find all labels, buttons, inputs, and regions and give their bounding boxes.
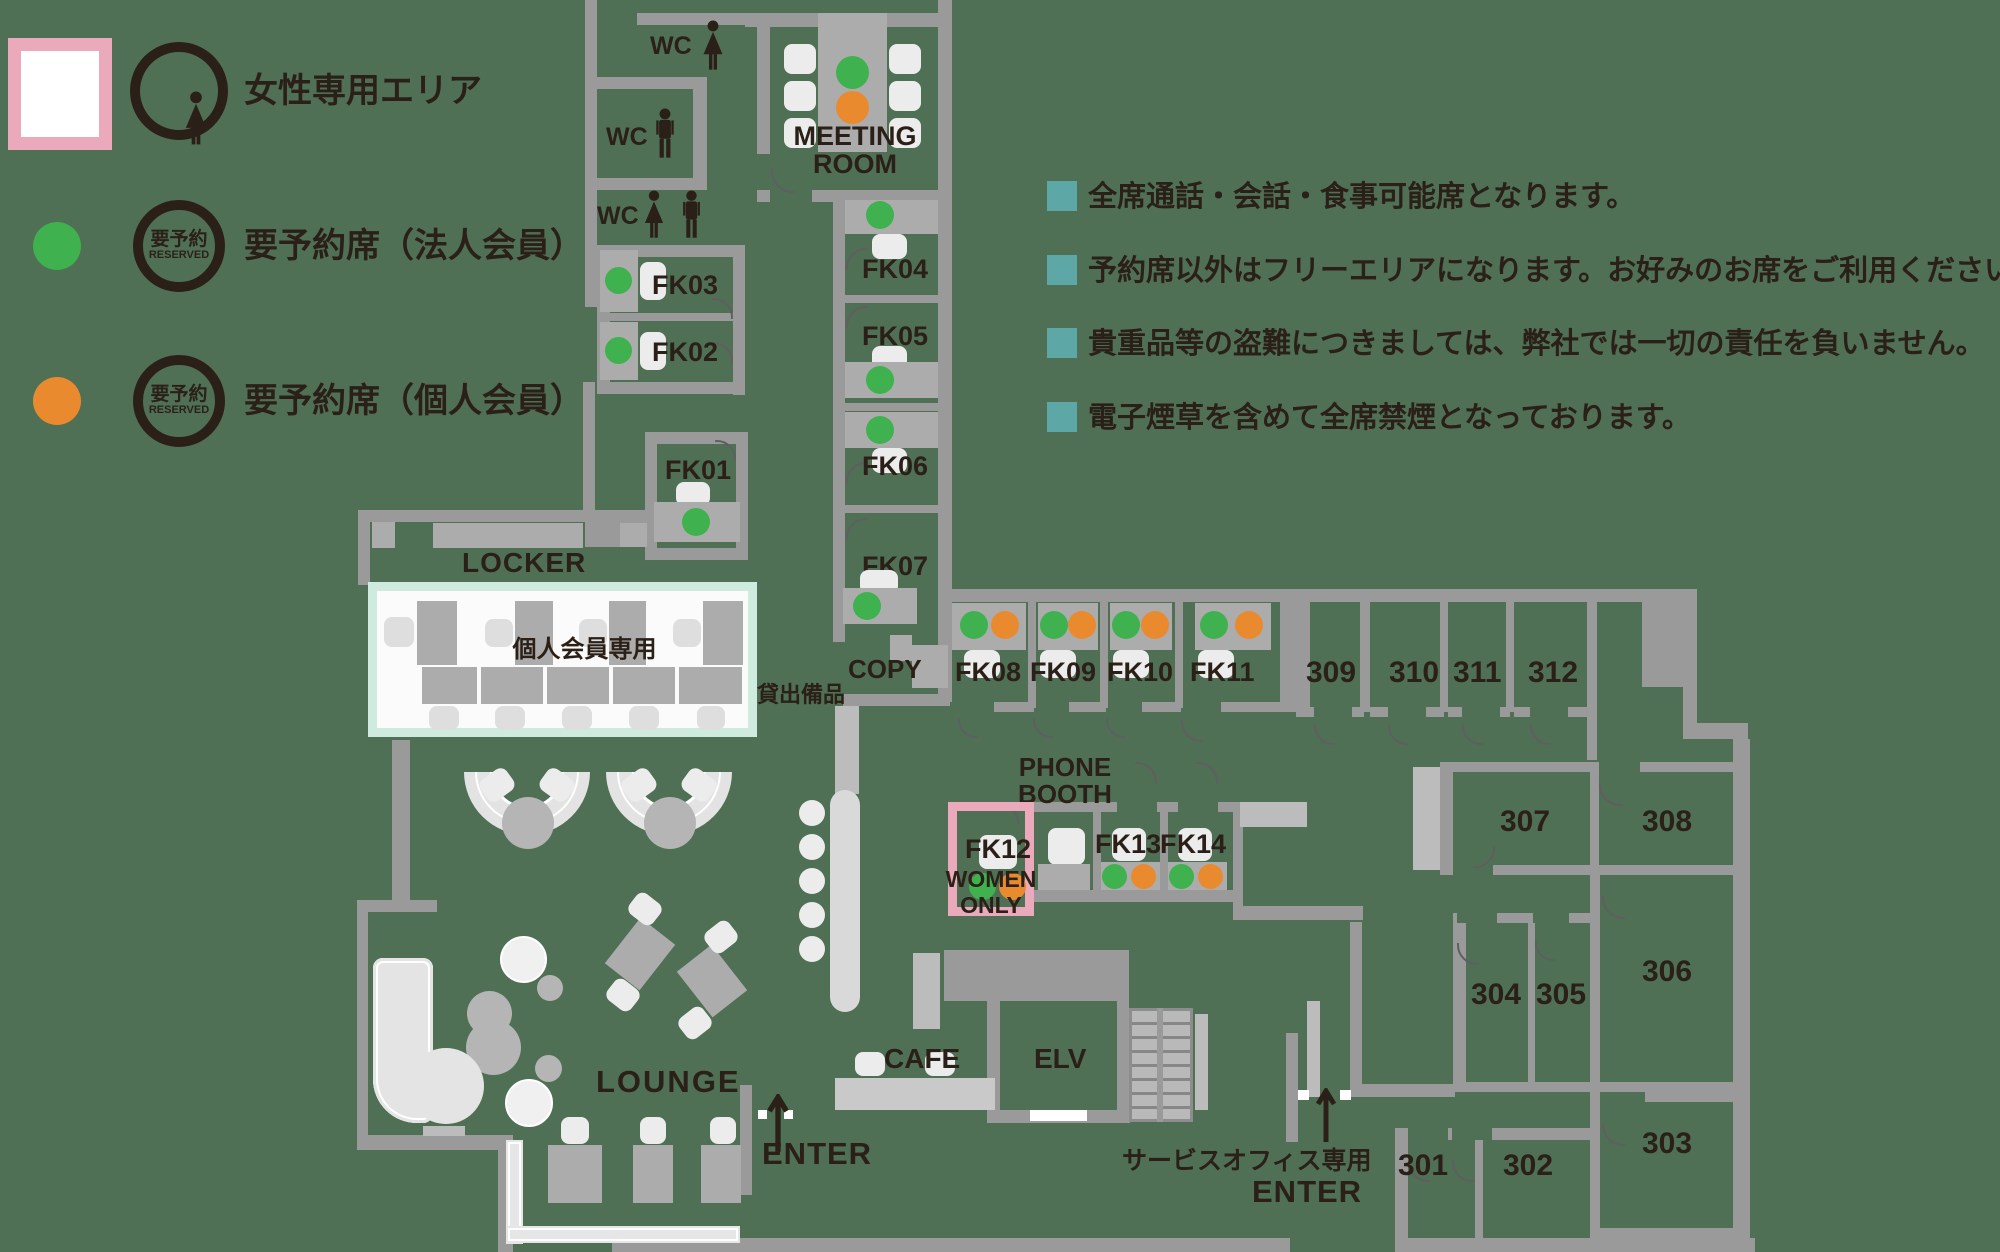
room-label-fk09: FK09 bbox=[1030, 658, 1096, 686]
female-badge bbox=[130, 42, 228, 140]
wall bbox=[1597, 1082, 1733, 1092]
stool bbox=[799, 902, 825, 928]
chair bbox=[889, 81, 921, 111]
wall bbox=[1100, 602, 1108, 708]
desk bbox=[679, 667, 742, 704]
door-mark bbox=[1298, 1090, 1309, 1100]
room-label-fk02: FK02 bbox=[652, 338, 718, 366]
wall bbox=[1500, 707, 1510, 717]
wall bbox=[1645, 1092, 1733, 1102]
notes: 全席通話・会話・食事可能席となります。 予約席以外はフリーエリアになります。お好… bbox=[1040, 170, 2000, 450]
reserved-seat-corporate-dot bbox=[1112, 611, 1140, 639]
wall bbox=[583, 382, 595, 512]
wall bbox=[1448, 707, 1462, 717]
note-text: 予約席以外はフリーエリアになります。お好みのお席をご利用ください。 bbox=[1088, 256, 2000, 286]
desk bbox=[422, 667, 477, 704]
lending-equipment-label: 貸出備品 bbox=[757, 683, 845, 706]
wall bbox=[358, 510, 370, 585]
pouf bbox=[537, 975, 563, 1001]
phone-booth-chair bbox=[1048, 828, 1085, 865]
wall bbox=[757, 190, 770, 202]
reserved-seat-individual-dot bbox=[1131, 864, 1156, 889]
room-label-fk08: FK08 bbox=[955, 658, 1021, 686]
meeting-room-label-line1: MEETING bbox=[793, 122, 916, 150]
wall bbox=[1597, 1228, 1750, 1240]
room-label-310: 310 bbox=[1389, 657, 1439, 689]
wall bbox=[938, 589, 1697, 602]
door-arc bbox=[1602, 1104, 1644, 1146]
wc-men-label: WC bbox=[606, 124, 648, 150]
stool bbox=[799, 800, 825, 826]
enter-label: ENTER bbox=[762, 1138, 872, 1171]
room-label-301: 301 bbox=[1398, 1150, 1448, 1182]
door-mark bbox=[1340, 1090, 1351, 1100]
wall bbox=[1395, 1238, 1755, 1252]
wall bbox=[1370, 707, 1388, 717]
wall bbox=[357, 1135, 513, 1150]
locker-members-note: 個人会員専用 bbox=[457, 637, 712, 663]
legend-women-area-label: 女性専用エリア bbox=[244, 74, 482, 110]
locker-unit bbox=[620, 523, 647, 547]
room-label-fk01: FK01 bbox=[665, 456, 731, 484]
counter bbox=[830, 790, 860, 1012]
legend-corporate-label: 要予約席（法人会員） bbox=[244, 229, 584, 265]
cafe-counter bbox=[913, 953, 940, 1029]
reserved-badge-en: RESERVED bbox=[149, 405, 209, 417]
chair bbox=[561, 1117, 589, 1144]
reserved-seat-individual-dot bbox=[836, 91, 869, 124]
wall bbox=[1492, 1128, 1590, 1140]
round-table bbox=[644, 797, 696, 849]
women-area-swatch bbox=[8, 38, 112, 150]
room-label-fk14: FK14 bbox=[1160, 830, 1226, 858]
door-arc bbox=[1535, 925, 1571, 961]
wall bbox=[1175, 602, 1183, 708]
wall bbox=[1413, 767, 1440, 870]
wall bbox=[843, 694, 950, 706]
wall bbox=[585, 0, 597, 307]
wall bbox=[1733, 760, 1750, 1242]
room-label-fk12: FK12 bbox=[965, 835, 1031, 863]
wall bbox=[1683, 687, 1697, 725]
chair bbox=[784, 44, 816, 74]
reserved-seat-corporate-dot bbox=[605, 337, 632, 364]
cafe-label: CAFE bbox=[884, 1044, 960, 1073]
wall bbox=[1069, 702, 1106, 712]
room-label-303: 303 bbox=[1642, 1128, 1692, 1160]
chair bbox=[629, 706, 659, 730]
room-label-fk11: FK11 bbox=[1190, 658, 1255, 686]
wall bbox=[1514, 707, 1530, 717]
pouf bbox=[500, 936, 547, 983]
reserved-seat-corporate-dot bbox=[33, 222, 81, 270]
phone-booth-label-line1: PHONE bbox=[1019, 754, 1111, 781]
chair bbox=[889, 44, 921, 74]
legend-individual-label: 要予約席（個人会員） bbox=[244, 384, 584, 420]
pouf bbox=[505, 1079, 553, 1127]
table bbox=[701, 1145, 741, 1203]
lounge-table bbox=[677, 945, 747, 1018]
reserved-seat-individual-dot bbox=[991, 611, 1019, 639]
wall bbox=[392, 740, 410, 902]
wall bbox=[1280, 602, 1296, 708]
wall bbox=[1569, 913, 1590, 923]
wall bbox=[1683, 723, 1748, 739]
wall bbox=[1640, 762, 1733, 772]
floor-plan: 女性専用エリア 要予約 RESERVED 要予約席（法人会員） 要予約 RESE… bbox=[0, 0, 2000, 1252]
reserved-seat-individual-dot bbox=[1068, 611, 1096, 639]
stool bbox=[799, 834, 825, 860]
note-bullet bbox=[1047, 255, 1077, 285]
room-label-fk10: FK10 bbox=[1107, 658, 1173, 686]
stool bbox=[799, 936, 825, 962]
room-label-307: 307 bbox=[1500, 806, 1550, 838]
pouf bbox=[535, 1055, 562, 1082]
elv-label: ELV bbox=[1034, 1044, 1086, 1073]
door-arc bbox=[1455, 828, 1495, 868]
room-label-304: 304 bbox=[1471, 979, 1521, 1011]
room-label-311: 311 bbox=[1453, 657, 1501, 689]
reserved-seat-corporate-dot bbox=[836, 56, 869, 89]
reserved-badge: 要予約 RESERVED bbox=[133, 200, 225, 292]
chair bbox=[625, 890, 665, 929]
door-arc bbox=[1117, 762, 1157, 802]
reserved-seat-individual-dot bbox=[1235, 611, 1263, 639]
bench bbox=[506, 1226, 740, 1243]
chair bbox=[429, 706, 459, 730]
phone-booth-label: PHONE BOOTH bbox=[1010, 755, 1120, 807]
shelf bbox=[1240, 802, 1307, 827]
reserved-seat-individual-dot bbox=[33, 377, 81, 425]
wall bbox=[1360, 602, 1370, 712]
wall bbox=[1497, 913, 1533, 923]
wall bbox=[1590, 875, 1600, 1092]
wall bbox=[357, 900, 437, 912]
chair bbox=[640, 1117, 666, 1144]
wall bbox=[757, 27, 770, 154]
reserved-seat-corporate-dot bbox=[1200, 611, 1228, 639]
room-label-309: 309 bbox=[1306, 657, 1356, 689]
door-arc bbox=[1599, 764, 1641, 806]
note-text: 貴重品等の盗難につきましては、弊社では一切の責任を負いません。 bbox=[1088, 329, 1985, 359]
wall bbox=[1493, 865, 1597, 875]
service-enter-label: ENTER bbox=[1252, 1176, 1362, 1209]
wall bbox=[1195, 1014, 1208, 1110]
locker-unit bbox=[433, 523, 583, 548]
table bbox=[633, 1145, 673, 1203]
wall bbox=[1440, 762, 1453, 874]
locker-members-area: 個人会員専用 bbox=[368, 582, 757, 737]
door-arc bbox=[1452, 1142, 1492, 1182]
wc-unisex-label: WC bbox=[597, 203, 639, 229]
wall bbox=[733, 245, 745, 395]
reserved-seat-corporate-dot bbox=[682, 508, 710, 536]
door-arc bbox=[1178, 762, 1218, 802]
cafe-counter bbox=[835, 1078, 995, 1110]
room-label-305: 305 bbox=[1536, 979, 1586, 1011]
wall bbox=[1296, 707, 1314, 717]
stair-rail bbox=[1157, 1008, 1163, 1122]
wall bbox=[1221, 702, 1296, 712]
wall bbox=[1506, 602, 1514, 712]
lounge-sofa bbox=[408, 1048, 484, 1124]
wall bbox=[1117, 1001, 1129, 1122]
desk bbox=[547, 667, 609, 704]
room-label-312: 312 bbox=[1528, 657, 1578, 689]
room-label-fk04: FK04 bbox=[862, 255, 928, 283]
wall bbox=[1475, 1140, 1483, 1252]
wall bbox=[1440, 762, 1597, 772]
wall bbox=[1426, 707, 1444, 717]
wall bbox=[645, 432, 745, 444]
meeting-room-label: MEETING ROOM bbox=[775, 122, 935, 178]
room-label-fk06: FK06 bbox=[862, 452, 928, 480]
wall bbox=[1597, 865, 1733, 875]
reserved-seat-corporate-dot bbox=[1169, 864, 1194, 889]
copy-label: COPY bbox=[848, 656, 922, 683]
desk bbox=[1038, 864, 1090, 890]
wall bbox=[994, 702, 1034, 712]
door-arc bbox=[1106, 702, 1142, 738]
wall bbox=[645, 548, 748, 560]
women-only-room-fk12: FK12 WOMEN ONLY bbox=[948, 802, 1034, 916]
reserved-seat-corporate-dot bbox=[960, 611, 988, 639]
wall bbox=[938, 0, 952, 602]
wall bbox=[1350, 1084, 1455, 1097]
wall bbox=[1286, 1033, 1298, 1142]
door-slab bbox=[1307, 1001, 1320, 1097]
wall bbox=[1350, 922, 1362, 1097]
table bbox=[548, 1145, 602, 1203]
wall bbox=[1033, 890, 1243, 902]
reserved-seat-corporate-dot bbox=[1040, 611, 1068, 639]
room-label-308: 308 bbox=[1642, 806, 1692, 838]
door-arc bbox=[1033, 702, 1069, 738]
wall bbox=[740, 1085, 752, 1195]
reserved-seat-corporate-dot bbox=[853, 592, 881, 620]
chair bbox=[697, 706, 725, 730]
lounge-label: LOUNGE bbox=[596, 1066, 741, 1099]
reserved-seat-corporate-dot bbox=[1102, 864, 1127, 889]
note-bullet bbox=[1047, 402, 1077, 432]
reserved-badge-jp: 要予約 bbox=[150, 385, 207, 405]
room-label-fk13: FK13 bbox=[1095, 830, 1161, 858]
wall bbox=[833, 505, 938, 513]
service-office-label: サービスオフィス専用 bbox=[1122, 1148, 1372, 1174]
wall bbox=[597, 382, 745, 394]
chair bbox=[562, 706, 592, 730]
wall bbox=[1395, 1128, 1408, 1252]
reserved-badge-en: RESERVED bbox=[149, 250, 209, 262]
wall bbox=[357, 900, 368, 1147]
chair bbox=[710, 1117, 736, 1144]
room-label-fk03: FK03 bbox=[652, 271, 718, 299]
locker-label: LOCKER bbox=[462, 548, 586, 577]
wall bbox=[1642, 602, 1697, 687]
wall bbox=[833, 202, 845, 642]
door-arc bbox=[1388, 707, 1426, 745]
door-arc bbox=[1181, 702, 1221, 742]
only-label: ONLY bbox=[957, 893, 1025, 917]
round-table bbox=[502, 797, 554, 849]
wall bbox=[944, 950, 1129, 1001]
wall bbox=[597, 178, 707, 190]
wall bbox=[1142, 702, 1181, 712]
chair bbox=[495, 706, 525, 730]
reserved-seat-corporate-dot bbox=[866, 366, 894, 394]
wall bbox=[693, 85, 707, 185]
shelf bbox=[835, 706, 859, 794]
room-label-302: 302 bbox=[1503, 1150, 1553, 1182]
wall bbox=[597, 77, 707, 89]
wall bbox=[1453, 1082, 1597, 1092]
note-bullet bbox=[1047, 181, 1077, 211]
wall bbox=[1587, 602, 1597, 760]
wall bbox=[833, 403, 938, 411]
wall bbox=[1448, 1128, 1452, 1140]
wall bbox=[1028, 602, 1036, 708]
wall bbox=[1590, 762, 1599, 875]
wall bbox=[358, 510, 585, 522]
door-arc bbox=[1462, 707, 1500, 745]
desk bbox=[613, 667, 675, 704]
stool bbox=[799, 868, 825, 894]
note-text: 電子煙草を含めて全席禁煙となっております。 bbox=[1088, 403, 1691, 433]
elevator-door bbox=[1030, 1110, 1087, 1121]
note-bullet bbox=[1047, 328, 1077, 358]
door-arc bbox=[958, 702, 994, 738]
door-arc bbox=[1602, 877, 1644, 919]
chair bbox=[855, 1052, 885, 1076]
locker-unit bbox=[372, 522, 395, 548]
meeting-room-label-line2: ROOM bbox=[813, 150, 897, 178]
wall bbox=[1453, 913, 1457, 923]
room-label-306: 306 bbox=[1642, 956, 1692, 988]
legend: 女性専用エリア 要予約 RESERVED 要予約席（法人会員） 要予約 RESE… bbox=[0, 0, 560, 460]
wall bbox=[1233, 906, 1363, 920]
wall bbox=[833, 295, 938, 303]
chair bbox=[784, 81, 816, 111]
door-arc bbox=[1314, 707, 1352, 745]
reserved-badge: 要予約 RESERVED bbox=[133, 355, 225, 447]
shelf bbox=[423, 1126, 465, 1136]
reserved-seat-corporate-dot bbox=[605, 267, 632, 294]
wall bbox=[1157, 802, 1178, 812]
wall bbox=[1440, 865, 1453, 875]
reserved-seat-corporate-dot bbox=[866, 416, 894, 444]
reserved-seat-corporate-dot bbox=[866, 201, 894, 229]
women-label: WOMEN bbox=[951, 867, 1031, 891]
desk bbox=[417, 601, 457, 665]
door-arc bbox=[1530, 707, 1568, 745]
reserved-seat-individual-dot bbox=[1198, 864, 1223, 889]
wall bbox=[1440, 602, 1448, 712]
reserved-seat-individual-dot bbox=[1141, 611, 1169, 639]
chair bbox=[384, 617, 414, 647]
wall bbox=[1528, 923, 1535, 1085]
wall bbox=[637, 13, 745, 25]
wall bbox=[1568, 707, 1587, 717]
wc-women-label: WC bbox=[650, 33, 692, 59]
desk bbox=[481, 667, 543, 704]
note-text: 全席通話・会話・食事可能席となります。 bbox=[1088, 182, 1635, 212]
reserved-badge-jp: 要予約 bbox=[150, 230, 207, 250]
wall bbox=[1352, 707, 1364, 717]
